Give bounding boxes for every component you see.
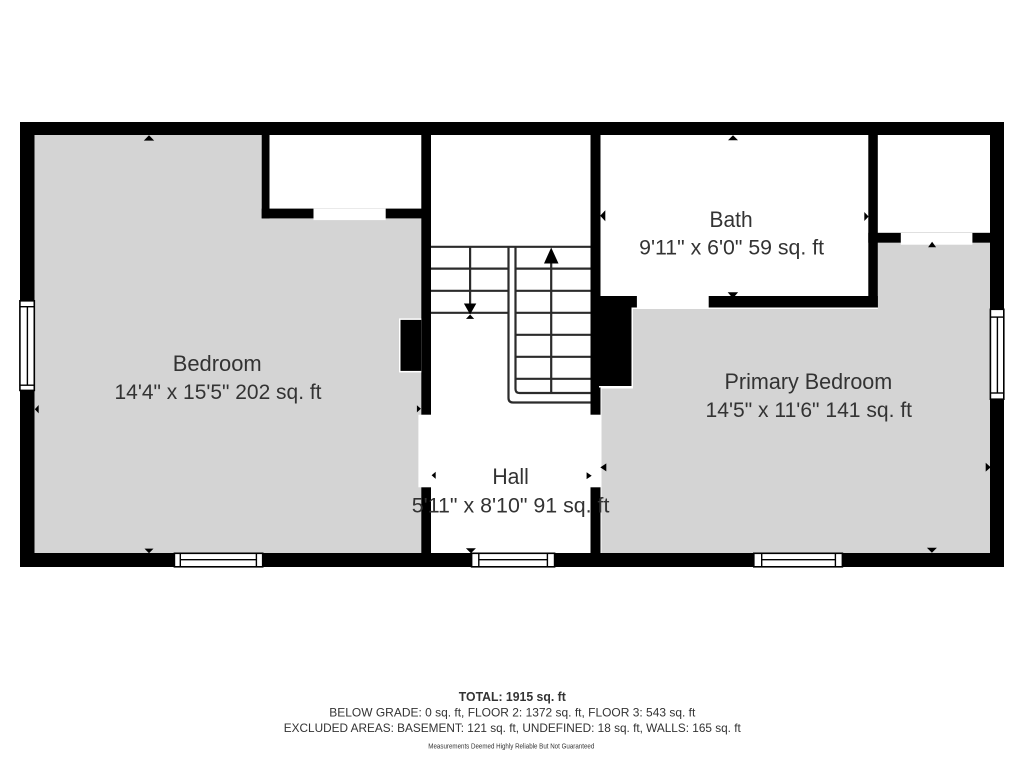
svg-text:5'11" x 8'10" 91 sq. ft: 5'11" x 8'10" 91 sq. ft [412, 494, 610, 517]
svg-text:BELOW GRADE: 0 sq. ft, FLOOR 2: BELOW GRADE: 0 sq. ft, FLOOR 2: 1372 sq.… [329, 705, 696, 719]
svg-text:Measurements Deemed Highly Rel: Measurements Deemed Highly Reliable But … [428, 741, 594, 750]
svg-text:14'4" x 15'5" 202 sq. ft: 14'4" x 15'5" 202 sq. ft [115, 381, 322, 404]
svg-text:Bedroom: Bedroom [173, 351, 262, 376]
svg-text:Primary Bedroom: Primary Bedroom [725, 369, 893, 394]
svg-text:TOTAL: 1915 sq. ft: TOTAL: 1915 sq. ft [459, 689, 567, 704]
svg-text:Bath: Bath [710, 207, 753, 232]
svg-text:EXCLUDED AREAS: BASEMENT: 121: EXCLUDED AREAS: BASEMENT: 121 sq. ft, UN… [284, 721, 742, 735]
svg-text:14'5" x 11'6" 141 sq. ft: 14'5" x 11'6" 141 sq. ft [706, 399, 913, 422]
svg-text:9'11" x 6'0" 59 sq. ft: 9'11" x 6'0" 59 sq. ft [639, 237, 824, 260]
svg-text:Hall: Hall [492, 464, 529, 489]
